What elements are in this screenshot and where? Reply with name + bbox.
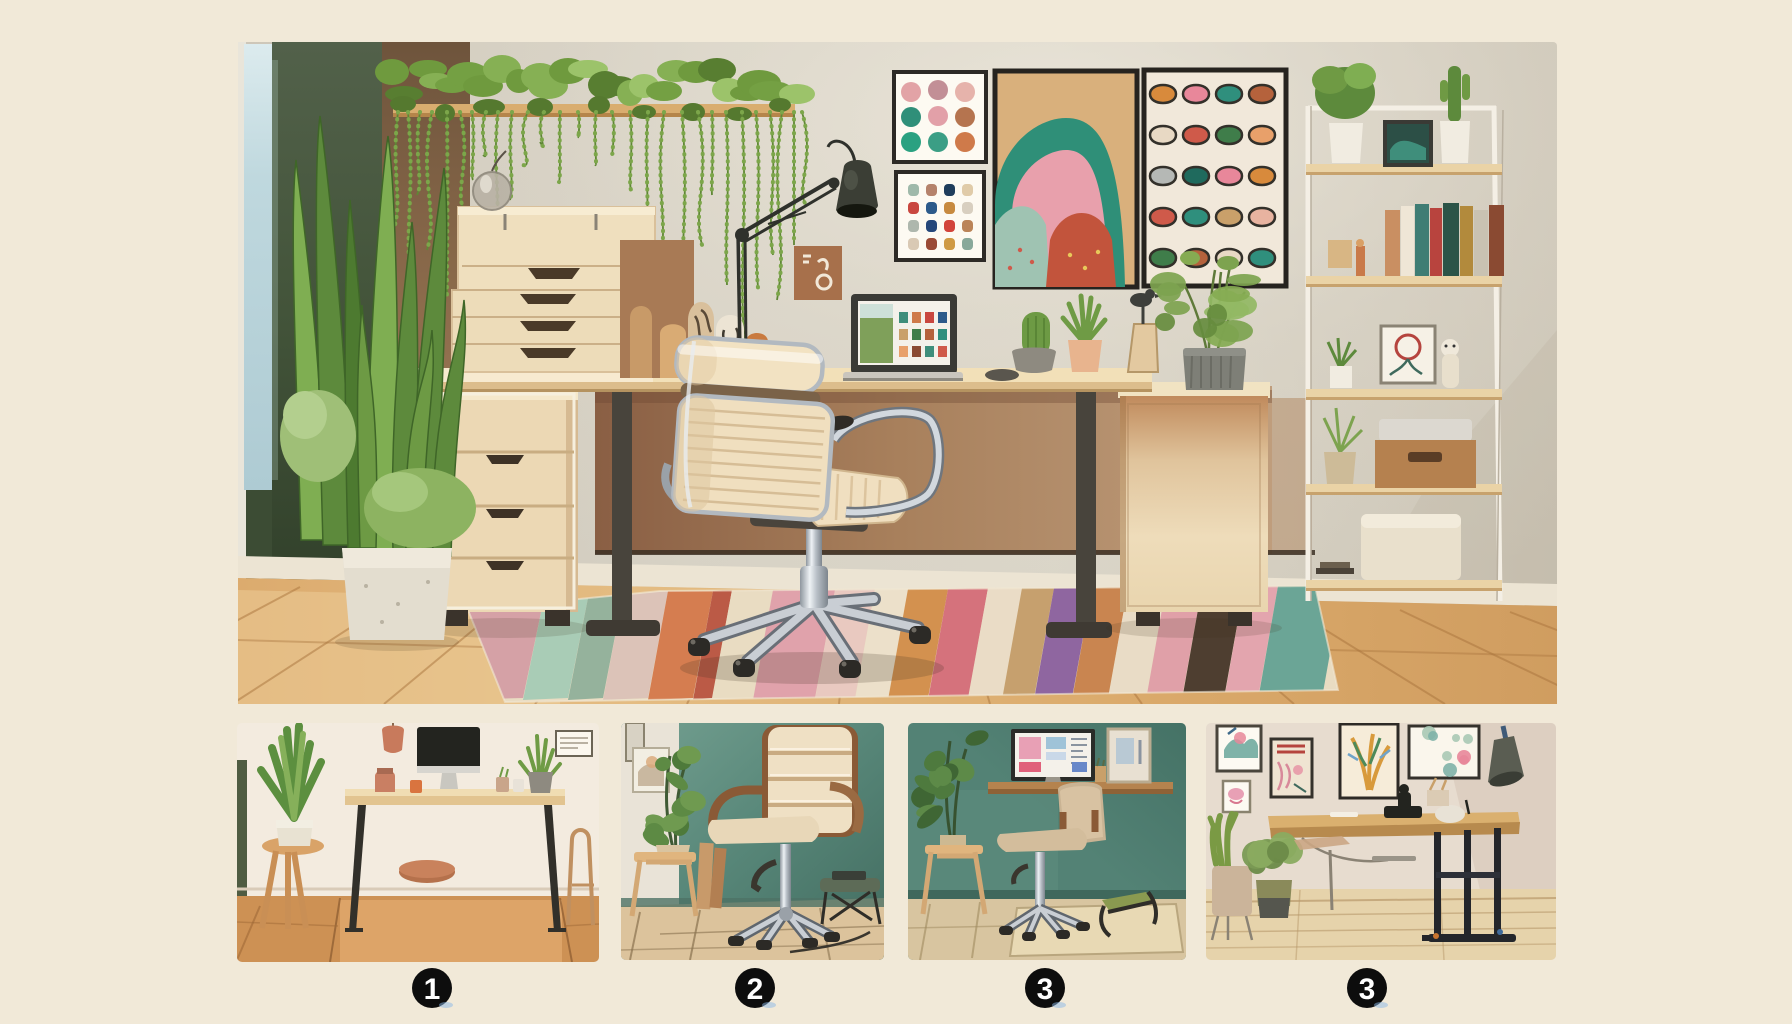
svg-text:3: 3: [1037, 973, 1054, 1006]
svg-text:3: 3: [1359, 973, 1376, 1006]
svg-text:1: 1: [424, 973, 441, 1006]
svg-text:2: 2: [747, 973, 764, 1006]
